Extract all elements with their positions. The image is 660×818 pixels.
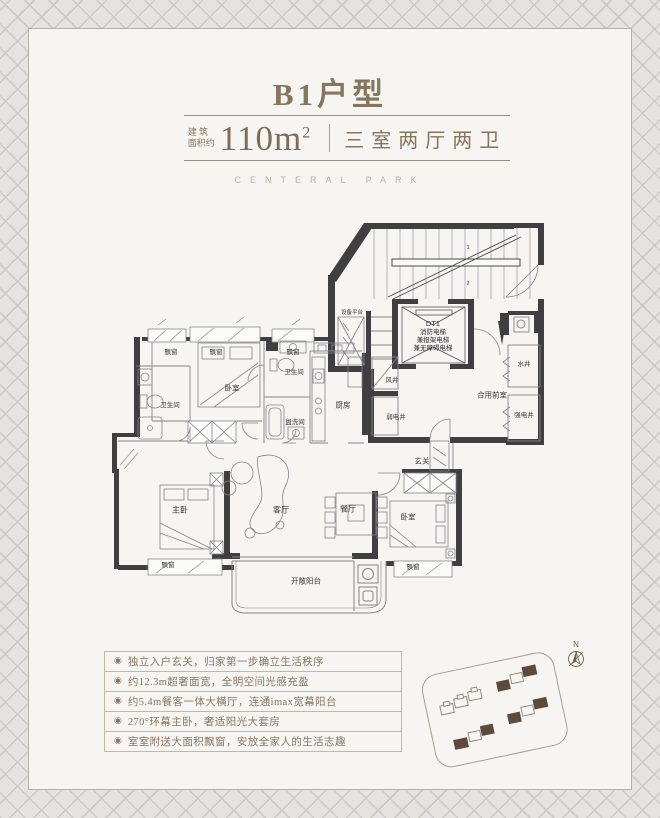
- room-label-bedroom-right: 卧室: [401, 512, 416, 523]
- room-label-living-room: 客厅: [273, 505, 289, 516]
- room-label-bay-window-2: 飘窗: [210, 346, 223, 356]
- feature-item: ◉ 约5.4m餐客一体大横厅，连通imax宽幕阳台: [104, 691, 402, 712]
- room-label-bathroom-mid: 卫生间: [284, 366, 304, 376]
- room-label-open-balcony: 开敞阳台: [291, 576, 321, 587]
- stair-marker-2: 2: [466, 281, 469, 287]
- room-label-air-shaft: 风井: [386, 374, 399, 384]
- unit-info-row: 建 筑 面积约 110m2 三室两厅两卫: [184, 117, 510, 159]
- building-cluster-highlight: [494, 664, 539, 691]
- room-label-bay-window-4: 飘窗: [162, 559, 175, 569]
- bullet-icon: ◉: [114, 657, 122, 666]
- area-superscript: 2: [302, 124, 311, 141]
- watermark-text: CENTERAL PARK: [29, 175, 631, 185]
- stair-marker-1: 1: [466, 245, 469, 251]
- room-label-strong-current-shaft: 强电井: [514, 409, 534, 419]
- equipment-platform-box: [338, 317, 364, 365]
- room-label-entry-hall: 玄关: [415, 456, 430, 467]
- room-label-bay-window-1: 飘窗: [165, 346, 178, 356]
- building-cluster-highlight: [505, 697, 550, 724]
- divider-line-bottom: [184, 160, 510, 161]
- room-label-bay-window-5: 飘窗: [407, 561, 420, 571]
- floorplan: 设备平台 DT1 消防电梯 兼担架电梯 兼无障碍电梯 水井 强电井 合用前室 风…: [96, 211, 566, 631]
- room-label-bay-window-3: 飘窗: [287, 346, 300, 356]
- building-cluster-outline: [438, 686, 484, 715]
- room-label-shared-vestibule: 合用前室: [477, 390, 507, 401]
- area-prefix-line2: 面积约: [188, 138, 215, 149]
- bullet-icon: ◉: [114, 677, 122, 686]
- room-label-bedroom-left: 卧室: [225, 383, 240, 394]
- room-label-washroom: 盥洗间: [285, 416, 305, 426]
- bullet-icon: ◉: [114, 737, 122, 746]
- bullet-icon: ◉: [114, 697, 122, 706]
- stair-break-line: [388, 235, 521, 299]
- feature-item: ◉ 独立入户玄关，归家第一步确立生活秩序: [104, 651, 402, 672]
- north-compass-icon: N: [569, 640, 584, 667]
- north-label: N: [573, 640, 579, 649]
- building-cluster-highlight: [452, 724, 497, 750]
- room-label-dining-room: 餐厅: [340, 504, 356, 515]
- room-label-water-shaft: 水井: [518, 358, 531, 368]
- area-prefix-line1: 建 筑: [188, 127, 215, 138]
- page: { "header": { "title": "B1户型", "area_pre…: [0, 0, 660, 818]
- bullet-icon: ◉: [114, 717, 122, 726]
- room-layout-text: 三室两厅两卫: [344, 124, 506, 153]
- area-prefix: 建 筑 面积约: [188, 127, 215, 150]
- feature-list: ◉ 独立入户玄关，归家第一步确立生活秩序 ◉ 约12.3m超奢面宽，全明空间光感…: [104, 651, 402, 752]
- area-value: 110m2: [220, 121, 311, 156]
- room-label-weak-current-shaft: 弱电井: [386, 411, 406, 421]
- vertical-divider: [329, 124, 330, 152]
- divider-line-top: [184, 115, 510, 116]
- room-label-kitchen: 厨房: [336, 400, 351, 411]
- stair-landing: [392, 259, 520, 266]
- feature-item: ◉ 270°环幕主卧，奢适阳光大套房: [104, 711, 402, 732]
- room-label-bathroom-left: 卫生间: [160, 399, 180, 409]
- brochure-card: B1户型 建 筑 面积约 110m2 三室两厅两卫 CENTERAL PARK: [28, 28, 632, 790]
- page-title: B1户型: [29, 69, 631, 114]
- feature-item: ◉ 室室附送大面积飘窗，安放全家人的生活志趣: [104, 731, 402, 752]
- feature-item: ◉ 约12.3m超奢面宽，全明空间光感充盈: [104, 671, 402, 692]
- siteplan: N: [414, 631, 594, 776]
- siteplan-drawing: N: [414, 631, 594, 776]
- balcony: [232, 561, 386, 613]
- elevator-label: DT1 消防电梯 兼担架电梯 兼无障碍电梯: [414, 319, 453, 353]
- siteplan-boundary-group: [419, 650, 570, 770]
- room-label-master-bedroom: 主卧: [172, 505, 188, 516]
- room-label-equipment-platform: 设备平台: [341, 308, 363, 316]
- entry-mat: [430, 441, 449, 471]
- door-arcs: [176, 265, 538, 495]
